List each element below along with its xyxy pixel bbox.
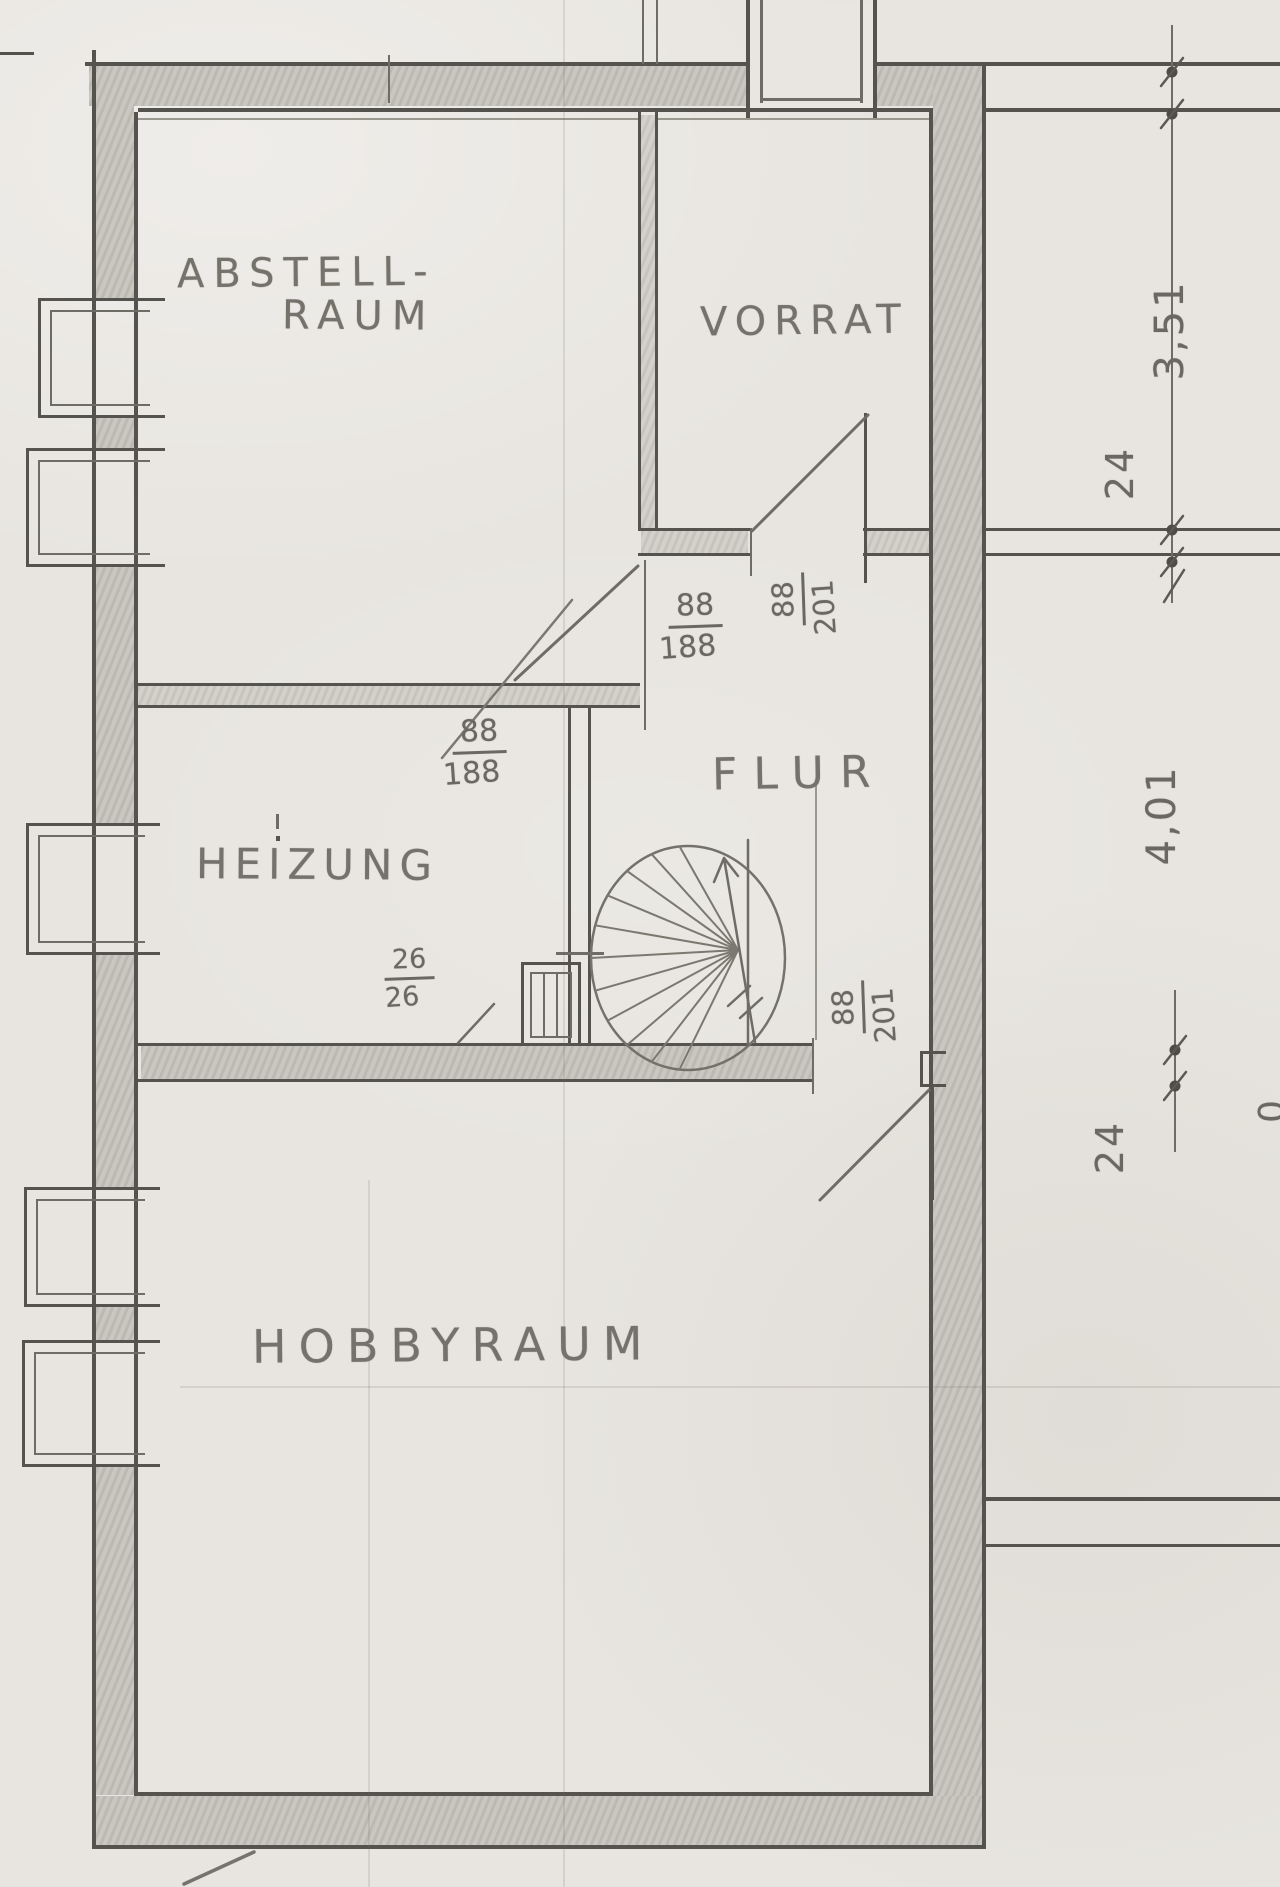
door-dim-heizung-numerator: 88	[451, 713, 507, 755]
door-dim-heizung-denominator: 188	[442, 754, 502, 793]
dim-wall-top: 24	[1100, 438, 1140, 508]
door-dim-vorrat: 88 201	[766, 557, 846, 643]
dim-vorrat-height: 3,51	[1148, 265, 1192, 395]
stair-arrow-ticks	[728, 986, 762, 1018]
door-dim-hobbyraum-denominator: 201	[865, 986, 903, 1044]
door-dim-hobbyraum: 88 201	[826, 965, 906, 1051]
dimension-slash-tick	[1164, 1036, 1186, 1064]
room-label-heizung: HEIZUNG	[196, 839, 439, 890]
niche-dim-denominator: 26	[384, 981, 420, 1014]
room-label-flur: FLUR	[712, 746, 887, 800]
niche-dim-numerator: 26	[383, 943, 435, 981]
dimension-slash-tick	[1164, 1072, 1186, 1100]
stair-tread-line	[652, 950, 738, 1062]
dimension-tick-marks	[1161, 58, 1186, 1100]
dimension-slash-tick	[1161, 516, 1183, 544]
dim-partial-digit: 0	[1254, 1090, 1280, 1130]
stair-tread-line	[595, 925, 738, 950]
door-swing-vorrat	[752, 415, 868, 531]
niche-dim: 26 26	[384, 944, 434, 1013]
dimension-slash-tick	[1161, 548, 1183, 576]
stair-tread-line	[680, 846, 739, 950]
stair-tread-line	[627, 950, 738, 1045]
room-label-vorrat: VORRAT	[700, 297, 909, 346]
room-label-hobbyraum: HOBBYRAUM	[252, 1316, 655, 1374]
stair-tread-line	[608, 950, 738, 1021]
door-dim-flur-abstell: 88 188	[666, 588, 723, 665]
dimension-slash-tick	[1161, 58, 1183, 86]
dim-wall-bottom: 24	[1090, 1112, 1130, 1182]
niche-dim-slash	[458, 1004, 494, 1043]
dimension-slash-tick	[1164, 570, 1184, 602]
door-dim-flur-abstell-numerator: 88	[667, 587, 723, 629]
door-dim-hobbyraum-numerator: 88	[825, 981, 866, 1035]
floor-plan-canvas: ABSTELL- RAUM VORRAT FLUR HEIZUNG HOBBYR…	[0, 0, 1280, 1887]
room-label-abstellraum-line2: RAUM	[282, 292, 436, 339]
dim-flur-height: 4,01	[1140, 747, 1184, 883]
door-swing-hobbyraum	[820, 1090, 929, 1200]
spiral-stair-outline	[591, 846, 785, 1070]
stray-pencil-stroke	[184, 1852, 254, 1884]
door-dim-flur-abstell-denominator: 188	[658, 628, 718, 667]
door-dim-heizung: 88 188	[450, 714, 507, 791]
room-label-abstellraum-line1: ABSTELL-	[177, 249, 437, 298]
door-dim-vorrat-numerator: 88	[765, 573, 806, 627]
door-swing-abstell	[515, 566, 638, 680]
door-dim-vorrat-denominator: 201	[805, 578, 843, 636]
stair-tread-line	[680, 950, 739, 1070]
dimension-slash-tick	[1161, 100, 1183, 128]
